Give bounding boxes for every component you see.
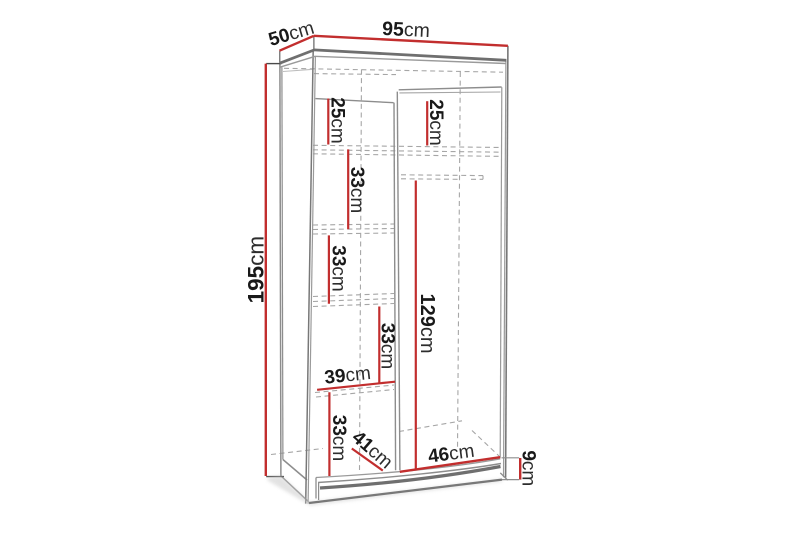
svg-text:33cm: 33cm — [377, 323, 398, 369]
svg-text:195cm: 195cm — [243, 236, 268, 304]
svg-text:25cm: 25cm — [327, 97, 348, 143]
svg-text:33cm: 33cm — [328, 415, 349, 461]
svg-text:129cm: 129cm — [416, 293, 438, 353]
svg-text:9cm: 9cm — [518, 450, 539, 486]
svg-text:95cm: 95cm — [382, 18, 431, 42]
svg-text:33cm: 33cm — [347, 167, 368, 213]
svg-text:25cm: 25cm — [426, 99, 447, 145]
svg-text:33cm: 33cm — [328, 245, 349, 291]
